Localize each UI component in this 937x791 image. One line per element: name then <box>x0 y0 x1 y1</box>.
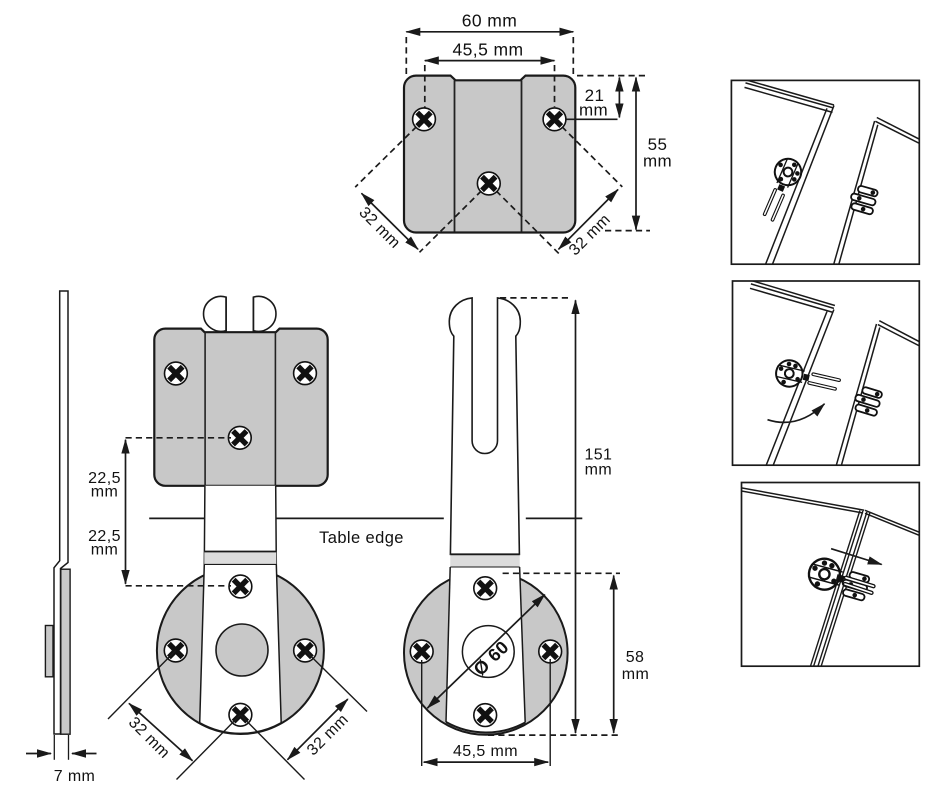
svg-text:mm: mm <box>579 101 608 120</box>
svg-text:45,5 mm: 45,5 mm <box>453 40 524 60</box>
svg-text:mm: mm <box>585 462 612 479</box>
svg-text:mm: mm <box>91 484 118 501</box>
svg-text:Table edge: Table edge <box>319 529 404 547</box>
svg-text:mm: mm <box>91 542 118 559</box>
svg-text:mm: mm <box>643 152 672 171</box>
svg-text:58: 58 <box>626 649 645 666</box>
svg-text:45,5 mm: 45,5 mm <box>453 743 518 760</box>
svg-text:7 mm: 7 mm <box>54 768 96 785</box>
svg-text:mm: mm <box>622 666 649 683</box>
svg-text:60 mm: 60 mm <box>462 11 517 31</box>
